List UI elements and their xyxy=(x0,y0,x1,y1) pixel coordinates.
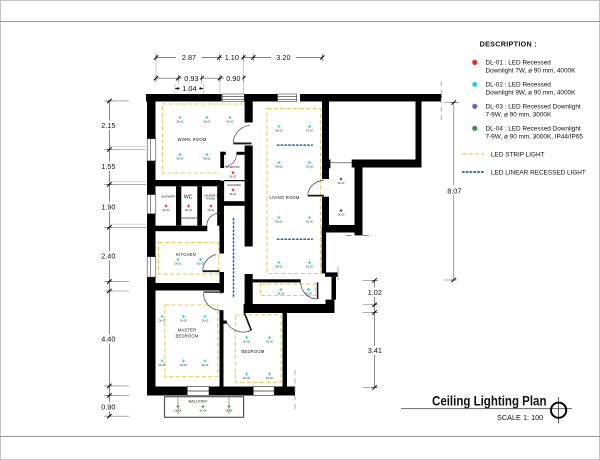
svg-text:BEDROOM: BEDROOM xyxy=(241,349,264,354)
svg-text:SHOWER: SHOWER xyxy=(227,183,241,187)
svg-text:1.04: 1.04 xyxy=(182,84,196,93)
svg-text:7-9W, ø 90 mm, 3000K, IP44/IP6: 7-9W, ø 90 mm, 3000K, IP44/IP65 xyxy=(486,134,584,141)
svg-text:BATHROOM 1: BATHROOM 1 xyxy=(180,216,198,220)
svg-text:KITCHEN: KITCHEN xyxy=(176,252,196,257)
svg-text:BALCONY: BALCONY xyxy=(188,398,207,403)
svg-text:7-9W, ø 90 mm, 3000K: 7-9W, ø 90 mm, 3000K xyxy=(486,112,552,119)
svg-text:SHOWER: SHOWER xyxy=(161,194,175,198)
svg-text:2.40: 2.40 xyxy=(101,252,115,261)
svg-text:3.20: 3.20 xyxy=(276,53,290,62)
svg-text:LED LINEAR RECESSED LIGHT: LED LINEAR RECESSED LIGHT xyxy=(491,170,586,177)
svg-text:DL-04 : LED Recessed Downlight: DL-04 : LED Recessed Downlight xyxy=(486,126,581,133)
svg-text:1.10: 1.10 xyxy=(225,53,239,62)
svg-text:ROOM: ROOM xyxy=(206,197,215,201)
svg-text:DL-01 : LED Recessed: DL-01 : LED Recessed xyxy=(486,60,552,67)
svg-text:1.55: 1.55 xyxy=(101,162,115,171)
svg-text:WORK ROOM: WORK ROOM xyxy=(177,137,206,142)
svg-text:Downlight 7W, ø 90 mm, 4000K: Downlight 7W, ø 90 mm, 4000K xyxy=(486,68,577,75)
svg-text:BEDROOM: BEDROOM xyxy=(175,333,198,338)
svg-text:DL-02 : LED Recessed: DL-02 : LED Recessed xyxy=(486,82,552,89)
svg-text:INTERCOM: INTERCOM xyxy=(226,165,240,169)
svg-text:2.87: 2.87 xyxy=(182,53,196,62)
svg-text:MASTER: MASTER xyxy=(178,328,197,333)
svg-text:DL-03 : LED Recessed Downlight: DL-03 : LED Recessed Downlight xyxy=(486,104,581,111)
svg-text:Ceiling Lighting Plan: Ceiling Lighting Plan xyxy=(432,394,547,410)
svg-text:1.02: 1.02 xyxy=(368,288,382,297)
svg-text:3.41: 3.41 xyxy=(368,346,382,355)
svg-text:LIVING ROOM: LIVING ROOM xyxy=(269,195,299,200)
svg-text:2.15: 2.15 xyxy=(101,121,115,130)
svg-text:Downlight 9W, ø 90 mm, 4000K: Downlight 9W, ø 90 mm, 4000K xyxy=(486,90,577,97)
svg-text:WC: WC xyxy=(184,194,193,200)
svg-text:LED STRIP LIGHT: LED STRIP LIGHT xyxy=(491,152,545,159)
svg-text:0.90: 0.90 xyxy=(226,74,240,83)
svg-text:1.90: 1.90 xyxy=(101,203,115,212)
svg-text:4.40: 4.40 xyxy=(101,335,115,344)
svg-text:DESCRIPTION :: DESCRIPTION : xyxy=(480,40,537,49)
svg-text:0.90: 0.90 xyxy=(101,403,115,412)
svg-text:8.07: 8.07 xyxy=(447,186,461,195)
svg-text:SCALE 1: 100: SCALE 1: 100 xyxy=(497,413,543,422)
svg-text:0.93: 0.93 xyxy=(184,74,198,83)
